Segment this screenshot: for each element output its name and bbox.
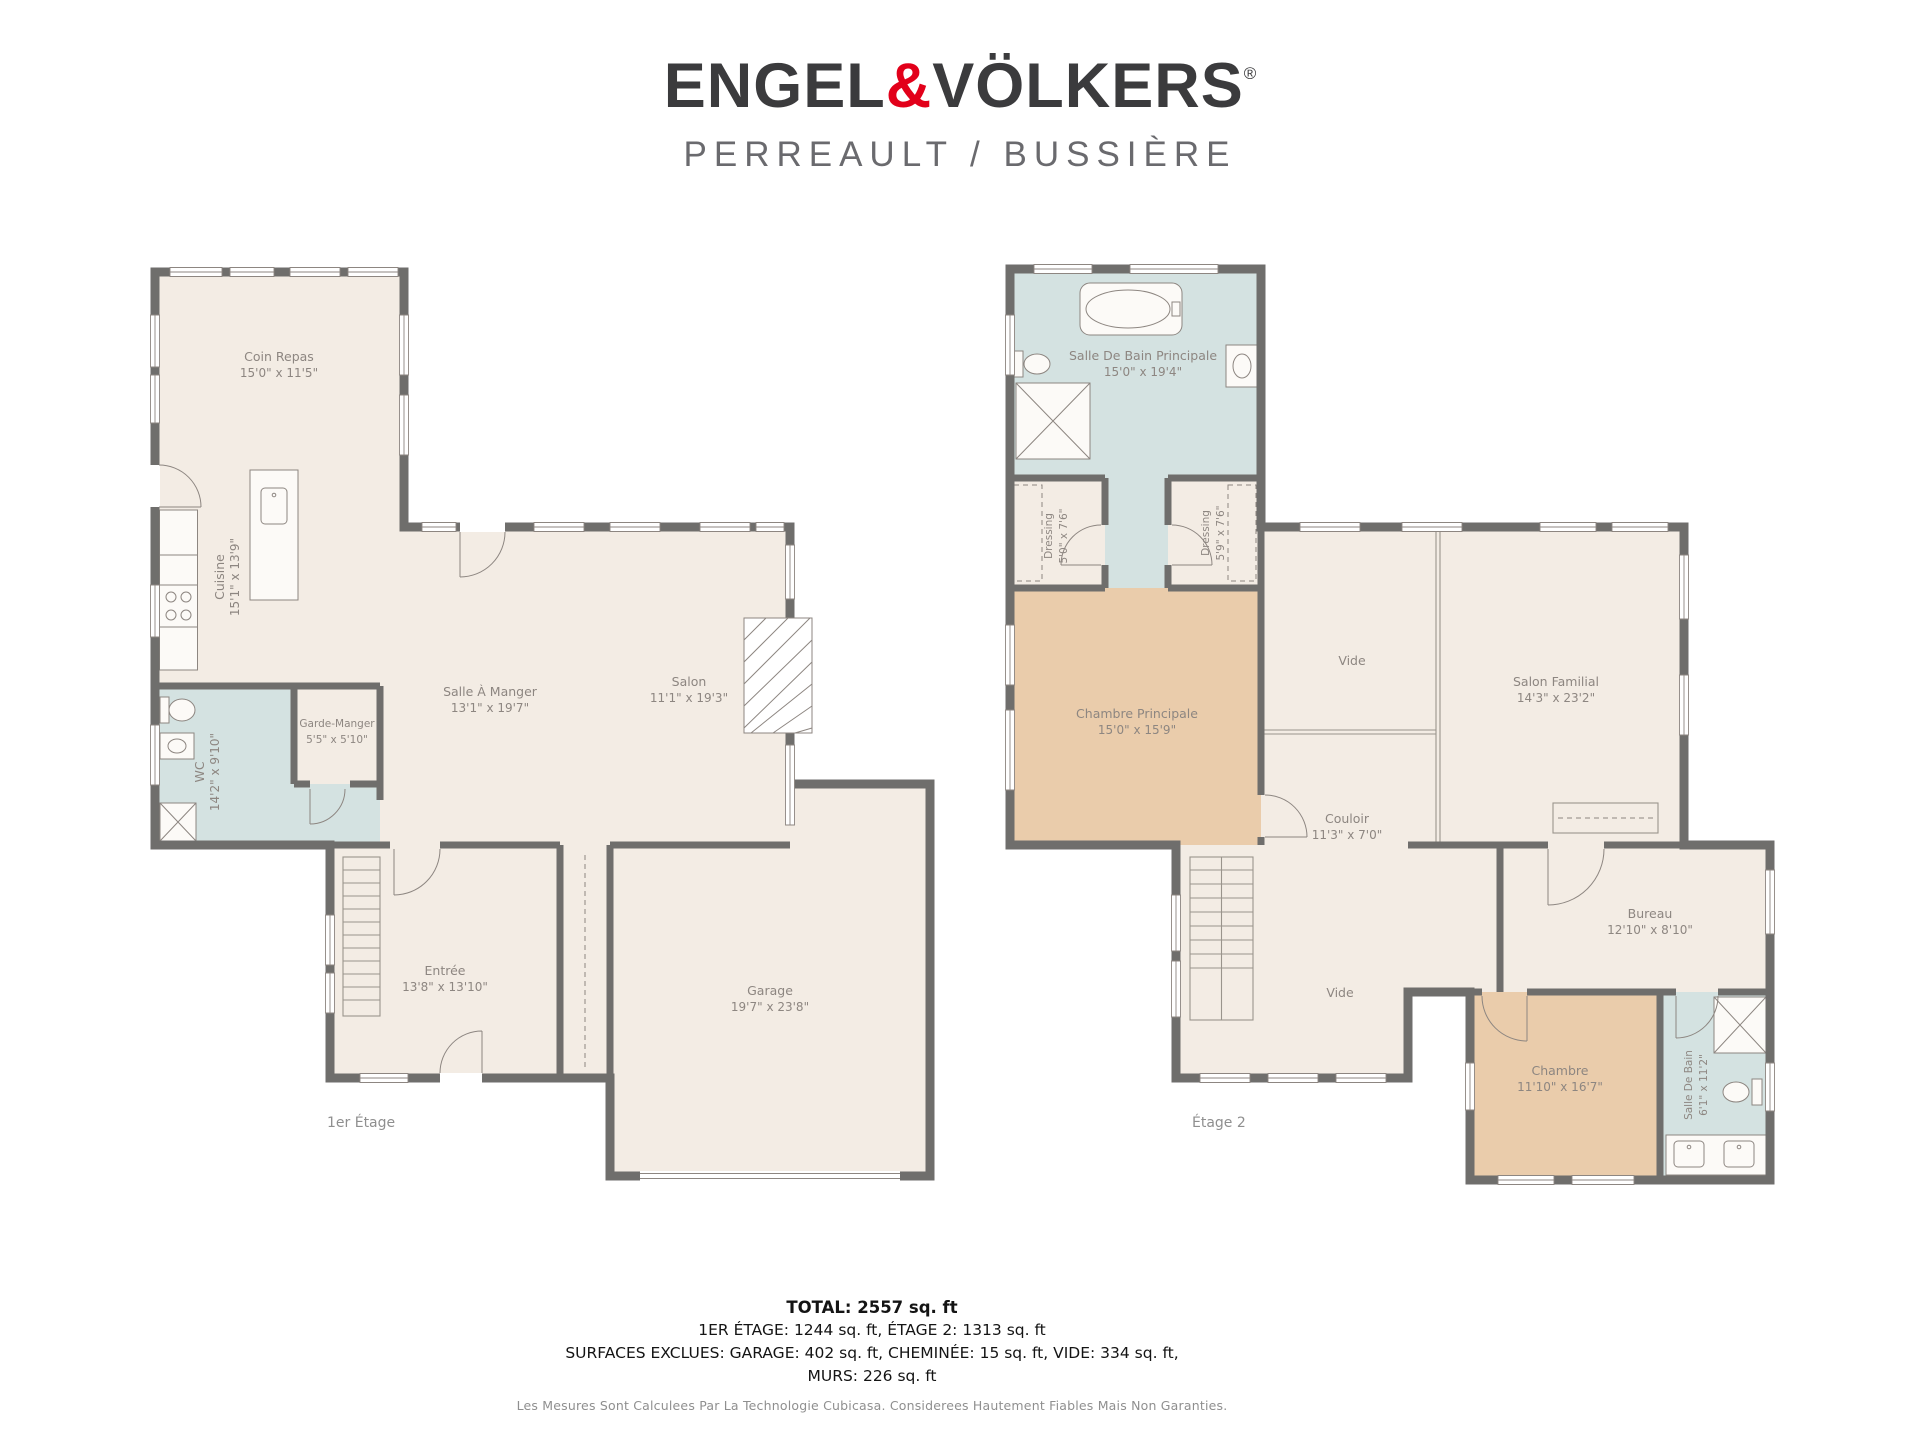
floor-label-1: 1er Étage (327, 1114, 395, 1131)
room-dims: 19'7" x 23'8" (731, 1000, 809, 1014)
brand-part2: VÖLKERS (932, 51, 1244, 121)
room-name: Couloir (1325, 811, 1370, 826)
room-name: Vide (1338, 653, 1366, 668)
room-name: Chambre Principale (1076, 706, 1198, 721)
room-name: Salon (672, 674, 707, 689)
brand-logo: ENGEL&VÖLKERS® (0, 52, 1920, 121)
room-name: Bureau (1628, 906, 1673, 921)
room-name: Salle De Bain (1683, 1050, 1695, 1120)
room-label-vide-bottom: Vide (1326, 985, 1354, 1000)
room-name: Cuisine (212, 554, 227, 600)
registered-mark: ® (1244, 64, 1257, 83)
room-dims: 5'9" x 7'6" (1215, 505, 1227, 560)
room-dims: 6'1" x 11'2" (1698, 1054, 1710, 1116)
room-dims: 11'10" x 16'7" (1517, 1080, 1603, 1094)
room-name: Dressing (1200, 510, 1212, 556)
floorplan-page: ENGEL&VÖLKERS® PERREAULT / BUSSIÈRE (0, 0, 1920, 1439)
room-dims: 15'0" x 15'9" (1098, 723, 1176, 737)
area-summary: TOTAL: 2557 sq. ft 1ER ÉTAGE: 1244 sq. f… (122, 1296, 1622, 1388)
room-name: Entrée (425, 963, 466, 978)
room-name: WC (192, 761, 207, 782)
measurement-disclaimer: Les Mesures Sont Calculees Par La Techno… (122, 1398, 1622, 1413)
room-name: Garage (747, 983, 793, 998)
room-dims: 13'8" x 13'10" (402, 980, 488, 994)
room-name: Salon Familial (1513, 674, 1599, 689)
fireplace (744, 618, 812, 733)
brokerage-name: PERREAULT / BUSSIÈRE (0, 135, 1920, 175)
level1-room-fills (155, 272, 930, 1176)
room-label-vide-top: Vide (1338, 653, 1366, 668)
room-name: Garde-Manger (299, 718, 375, 730)
room-dims: 15'0" x 19'4" (1104, 365, 1182, 379)
brand-part1: ENGEL (664, 51, 886, 121)
room-name: Chambre (1532, 1063, 1589, 1078)
room-dims: 15'1" x 13'9" (228, 538, 242, 616)
excluded-areas: SURFACES EXCLUES: GARAGE: 402 sq. ft, CH… (122, 1342, 1622, 1365)
room-dims: 14'3" x 23'2" (1517, 691, 1595, 705)
room-name: Salle À Manger (443, 684, 538, 699)
floor-label-2: Étage 2 (1192, 1114, 1246, 1131)
room-dims: 12'10" x 8'10" (1607, 923, 1693, 937)
room-name: Coin Repas (244, 349, 314, 364)
brand-ampersand: & (886, 51, 933, 121)
room-dims: 5'5" x 5'10" (306, 734, 368, 746)
room-name: Vide (1326, 985, 1354, 1000)
room-dims: 11'3" x 7'0" (1312, 828, 1383, 842)
room-dims: 13'1" x 19'7" (451, 701, 529, 715)
header: ENGEL&VÖLKERS® PERREAULT / BUSSIÈRE (0, 0, 1920, 175)
room-dims: 14'2" x 9'10" (208, 733, 222, 811)
floor-areas: 1ER ÉTAGE: 1244 sq. ft, ÉTAGE 2: 1313 sq… (122, 1319, 1622, 1342)
room-name: Salle De Bain Principale (1069, 348, 1217, 363)
room-name: Dressing (1043, 513, 1055, 559)
floorplan-level-2: Salle De Bain Principale 15'0" x 19'4" D… (1000, 255, 1790, 1190)
walls-area: MURS: 226 sq. ft (122, 1365, 1622, 1388)
room-dims: 11'1" x 19'3" (650, 691, 728, 705)
room-dims: 5'0" x 7'6" (1058, 508, 1070, 563)
room-dims: 15'0" x 11'5" (240, 366, 318, 380)
total-area: TOTAL: 2557 sq. ft (122, 1296, 1622, 1319)
floorplan-level-1: Coin Repas 15'0" x 11'5" Cuisine 15'1" x… (140, 255, 950, 1190)
